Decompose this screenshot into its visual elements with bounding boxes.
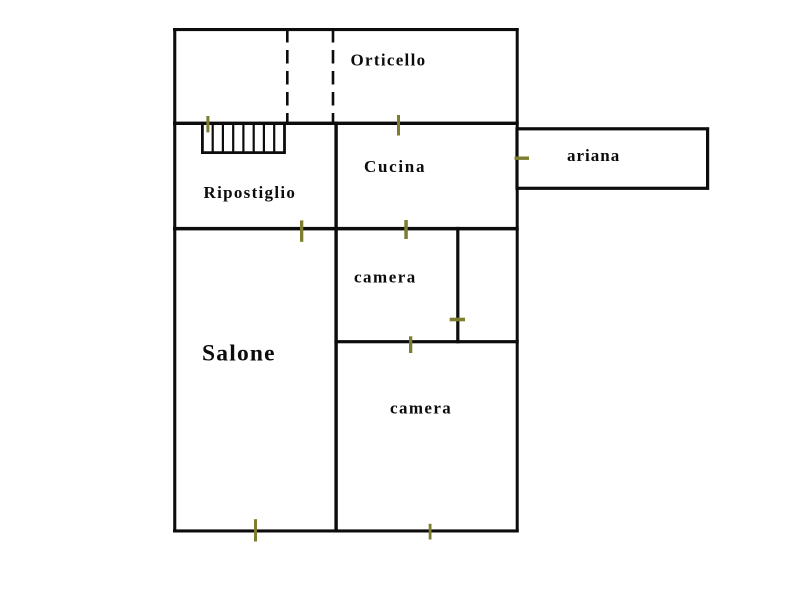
- svg-text:Ripostiglio: Ripostiglio: [204, 183, 297, 202]
- svg-text:camera: camera: [390, 399, 452, 418]
- svg-text:Salone: Salone: [202, 341, 276, 367]
- svg-text:Cucina: Cucina: [364, 157, 426, 176]
- svg-text:Orticello: Orticello: [351, 51, 427, 70]
- svg-text:ariana: ariana: [567, 146, 620, 165]
- svg-text:camera: camera: [354, 268, 417, 287]
